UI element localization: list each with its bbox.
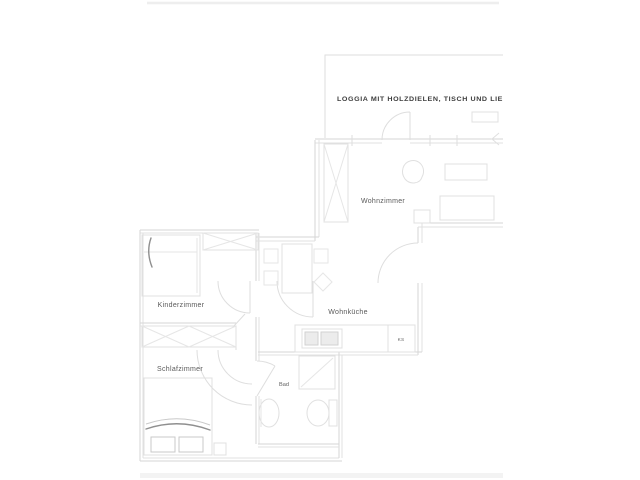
- sofa: [440, 196, 494, 220]
- pillow: [179, 437, 203, 452]
- door-swings: [197, 112, 418, 405]
- armchair: [403, 160, 424, 182]
- wohnzimmer-label: Wohnzimmer: [361, 198, 405, 205]
- shower: [299, 356, 335, 389]
- plan-cut-mask: [503, 0, 640, 480]
- floor-plan-page: LOGGIA MIT HOLZDIELEN, TISCH UND LIE Woh…: [0, 0, 640, 480]
- pillow: [151, 437, 175, 452]
- kinderzimmer-label: Kinderzimmer: [158, 302, 205, 309]
- nightstand: [214, 443, 226, 455]
- schlafzimmer-label: Schlafzimmer: [157, 366, 203, 373]
- double-bed: [144, 378, 212, 455]
- room-wohnkueche: [264, 244, 415, 352]
- room-schlafzimmer: [142, 326, 236, 455]
- room-bad: [259, 356, 337, 427]
- dining-chairs: [264, 249, 332, 291]
- coffee-table: [445, 164, 487, 180]
- toilet: [307, 400, 337, 426]
- wardrobe: [142, 326, 236, 347]
- loggia-bench: [472, 112, 498, 122]
- loggia-label: LOGGIA MIT HOLZDIELEN, TISCH UND LIE: [337, 96, 503, 103]
- room-wohnzimmer: [324, 144, 494, 223]
- single-bed: [142, 235, 200, 296]
- ks-label: KS: [398, 337, 405, 343]
- wardrobe: [203, 233, 258, 250]
- floor-plan-drawing: LOGGIA MIT HOLZDIELEN, TISCH UND LIE Woh…: [0, 0, 640, 480]
- side-table: [414, 210, 430, 223]
- wohnkueche-label: Wohnküche: [328, 309, 368, 316]
- dining-table: [282, 244, 312, 293]
- room-loggia: [472, 112, 499, 145]
- bad-label: Bad: [279, 382, 289, 388]
- washbasin: [259, 399, 279, 427]
- room-kinderzimmer: [142, 233, 258, 296]
- wardrobe: [324, 144, 348, 222]
